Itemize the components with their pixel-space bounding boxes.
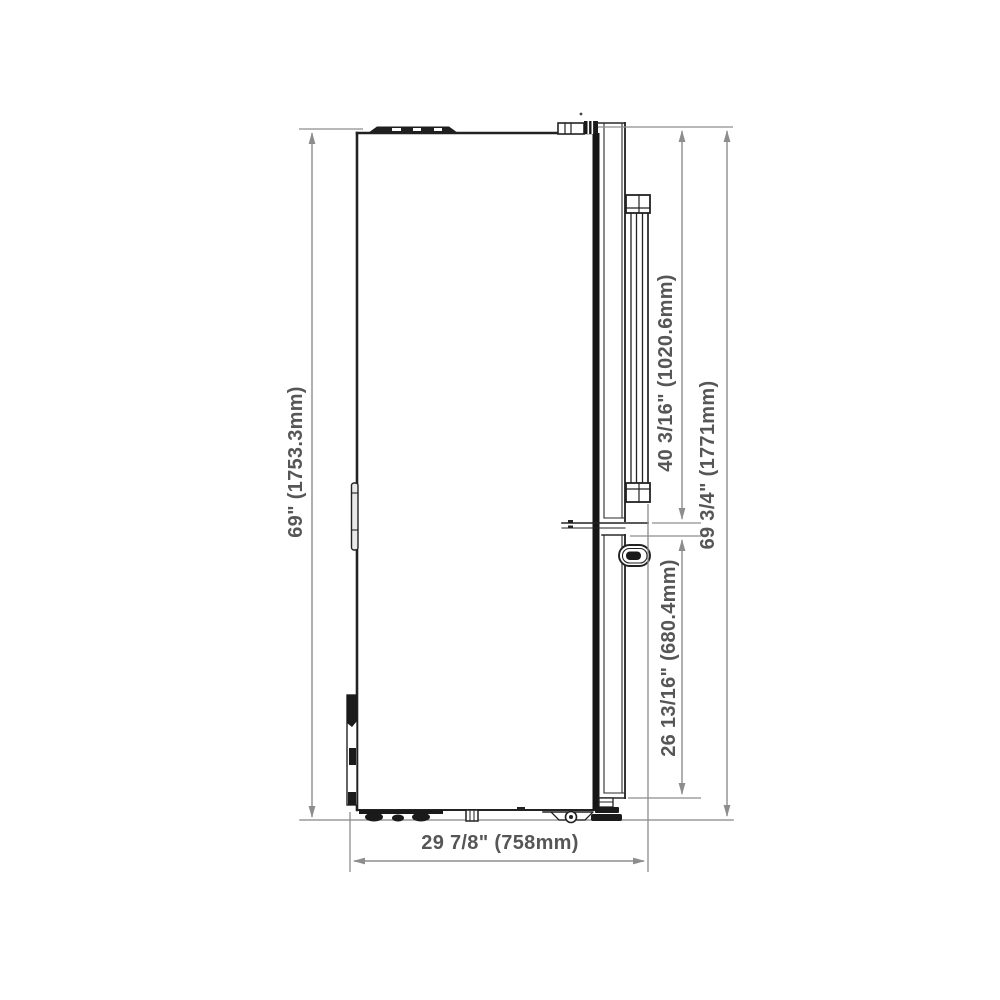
rear-lower-bracket (347, 695, 357, 805)
overall-height-label: 69" (1753.3mm) (285, 386, 307, 538)
lower-door-pocket-handle (619, 545, 650, 566)
mid-foot (466, 810, 478, 821)
hinge-pin-mark (580, 113, 583, 116)
lower-door (599, 535, 625, 798)
cabinet-body (357, 133, 600, 810)
total-height-label: 69 3/4" (1771mm) (697, 381, 719, 550)
door-junction (562, 520, 648, 529)
handle-bottom-bracket (626, 483, 650, 502)
lower-door-height-label: 26 13/16" (680.4mm) (658, 559, 680, 757)
top-rear-hinge-cover (368, 127, 458, 134)
upper-door (598, 123, 625, 521)
rear-hinge-tab (352, 483, 359, 550)
upper-door-height-label: 40 3/16" (1020.6mm) (655, 274, 677, 472)
handle-top-bracket (626, 195, 650, 213)
cabinet-front-edge (593, 133, 600, 810)
upper-door-handle (626, 195, 650, 502)
top-front-hinge (558, 113, 598, 134)
extension-lines (299, 127, 733, 872)
depth-label: 29 7/8" (758mm) (421, 832, 578, 854)
dimension-drawing-canvas: 69" (1753.3mm) 40 3/16" (1020.6mm) 69 3/… (0, 0, 1000, 1000)
refrigerator-dimension-diagram: 69" (1753.3mm) 40 3/16" (1020.6mm) 69 3/… (0, 0, 1000, 1000)
handle-grip-mark (626, 552, 641, 561)
